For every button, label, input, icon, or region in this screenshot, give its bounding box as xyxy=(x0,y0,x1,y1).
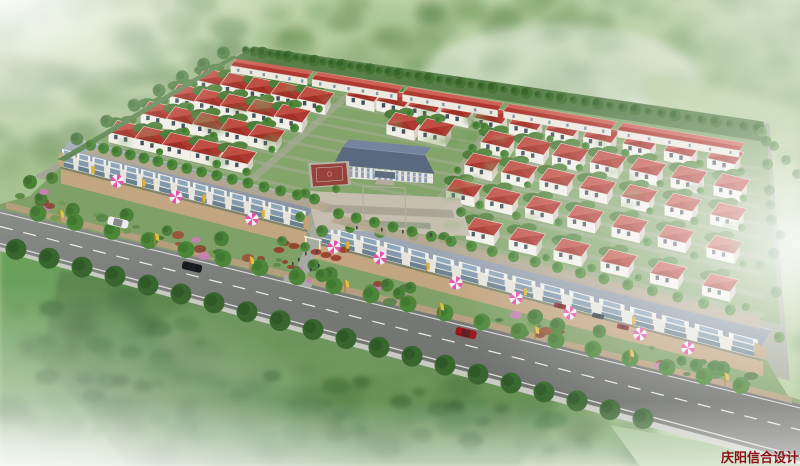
svg-text:庆阳信合设计: 庆阳信合设计 xyxy=(720,450,799,465)
